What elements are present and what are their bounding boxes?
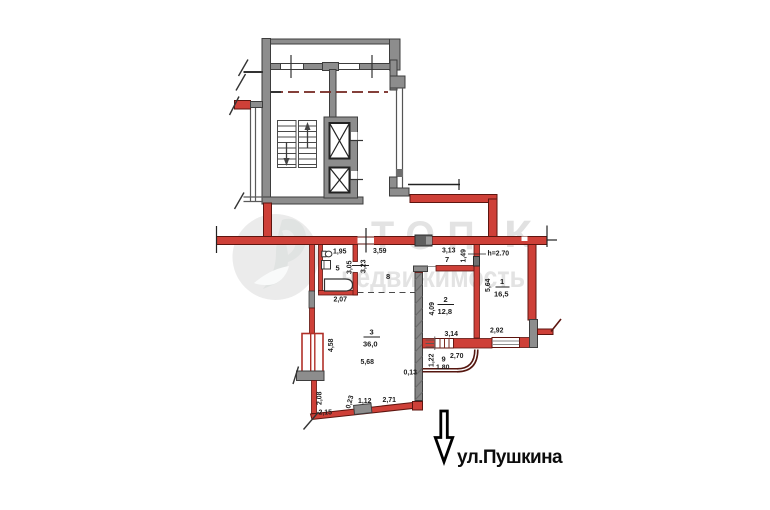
svg-text:2: 2 <box>444 295 448 304</box>
svg-text:12,8: 12,8 <box>438 307 453 316</box>
svg-text:2,07: 2,07 <box>334 297 348 304</box>
svg-text:36,0: 36,0 <box>363 340 378 349</box>
svg-text:1,22: 1,22 <box>429 353 436 367</box>
svg-text:3,14: 3,14 <box>445 331 459 338</box>
svg-text:1,49: 1,49 <box>461 249 468 263</box>
svg-text:2,71: 2,71 <box>383 397 397 404</box>
svg-text:4,09: 4,09 <box>429 302 436 316</box>
svg-text:1.80: 1.80 <box>436 365 450 372</box>
svg-text:ул.Пушкина: ул.Пушкина <box>457 447 563 468</box>
svg-text:2,15: 2,15 <box>319 410 333 417</box>
svg-text:2,92: 2,92 <box>490 328 504 335</box>
svg-text:7: 7 <box>445 255 449 264</box>
svg-text:9: 9 <box>442 355 446 364</box>
svg-text:3,13: 3,13 <box>442 248 456 255</box>
svg-text:h=2.70: h=2.70 <box>488 251 510 258</box>
svg-text:16,5: 16,5 <box>494 290 509 299</box>
svg-text:1,12: 1,12 <box>358 398 372 405</box>
svg-text:5: 5 <box>336 264 340 273</box>
svg-text:0,13: 0,13 <box>404 370 418 377</box>
svg-text:2,08: 2,08 <box>317 391 324 405</box>
svg-text:1,95: 1,95 <box>333 249 347 256</box>
svg-text:1: 1 <box>500 277 504 286</box>
svg-text:4,58: 4,58 <box>328 338 335 352</box>
svg-text:2,70: 2,70 <box>450 353 464 360</box>
svg-text:5,64: 5,64 <box>485 278 492 292</box>
svg-text:5,68: 5,68 <box>361 359 375 366</box>
svg-text:3,05: 3,05 <box>347 260 354 274</box>
svg-text:8: 8 <box>386 272 390 281</box>
svg-text:3,23: 3,23 <box>361 259 368 273</box>
svg-text:3,59: 3,59 <box>373 248 387 255</box>
svg-text:3: 3 <box>370 328 374 337</box>
